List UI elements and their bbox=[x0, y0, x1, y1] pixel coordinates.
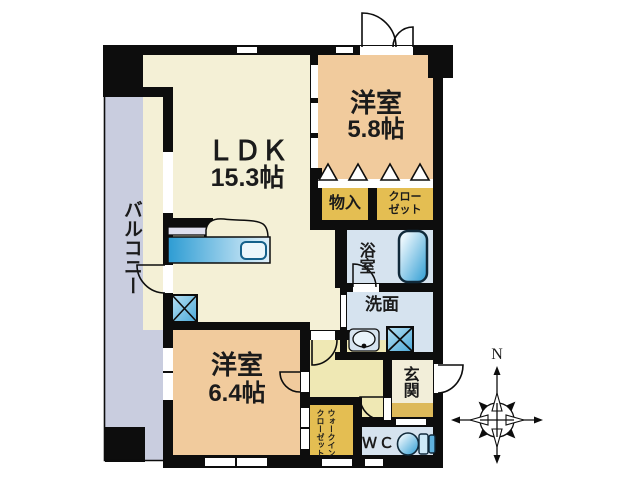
top-double-door-left-arc bbox=[362, 13, 396, 47]
compass-north-label: N bbox=[487, 346, 507, 364]
entrance-door-arc bbox=[438, 365, 463, 393]
label-ldk-size: 15.3帖 bbox=[180, 165, 315, 193]
label-ldk-name: ＬＤＫ bbox=[180, 137, 315, 167]
ldk-hallway-door-arc bbox=[312, 340, 337, 365]
label-bedroom-lower-size: 6.4帖 bbox=[175, 381, 299, 407]
label-wic-line2: クローゼット bbox=[315, 404, 326, 461]
hallway-entrance-door-arc bbox=[360, 397, 383, 420]
label-wc: ＷＣ bbox=[358, 436, 400, 453]
label-bedroom-upper-name: 洋室 bbox=[320, 89, 432, 118]
kitchen-hatch-curve bbox=[206, 219, 268, 238]
label-closet-line2: ゼット bbox=[377, 204, 433, 217]
kitchen-sink bbox=[241, 242, 266, 259]
label-bathroom: 浴室 bbox=[356, 234, 374, 282]
kitchen-counter bbox=[168, 218, 270, 263]
closet-bifold-icons bbox=[319, 164, 429, 180]
label-balcony: バルコニー bbox=[120, 180, 141, 315]
label-closet: クロー ゼット bbox=[377, 191, 433, 217]
label-bedroom-upper-size: 5.8帖 bbox=[320, 117, 432, 143]
label-washroom: 洗面 bbox=[347, 296, 417, 315]
label-closet-line1: クロー bbox=[377, 191, 433, 204]
floor-plan: ＬＤＫ 15.3帖 洋室 5.8帖 洋室 6.4帖 バルコニー 物入 クロー ゼ… bbox=[0, 0, 640, 480]
label-storage: 物入 bbox=[322, 195, 368, 213]
label-bedroom-lower-name: 洋室 bbox=[175, 351, 299, 380]
label-walk-in-closet: ウォークイン クローゼット bbox=[315, 404, 337, 461]
bathtub-icon bbox=[399, 231, 427, 282]
compass bbox=[451, 366, 543, 464]
pipe-space-icon bbox=[172, 295, 197, 322]
toilet-icon bbox=[398, 433, 436, 455]
washbasin-icon bbox=[349, 329, 379, 351]
label-wic-line1: ウォークイン bbox=[326, 404, 337, 461]
label-entrance: 玄関 bbox=[400, 361, 418, 403]
washing-machine-icon bbox=[387, 327, 413, 352]
